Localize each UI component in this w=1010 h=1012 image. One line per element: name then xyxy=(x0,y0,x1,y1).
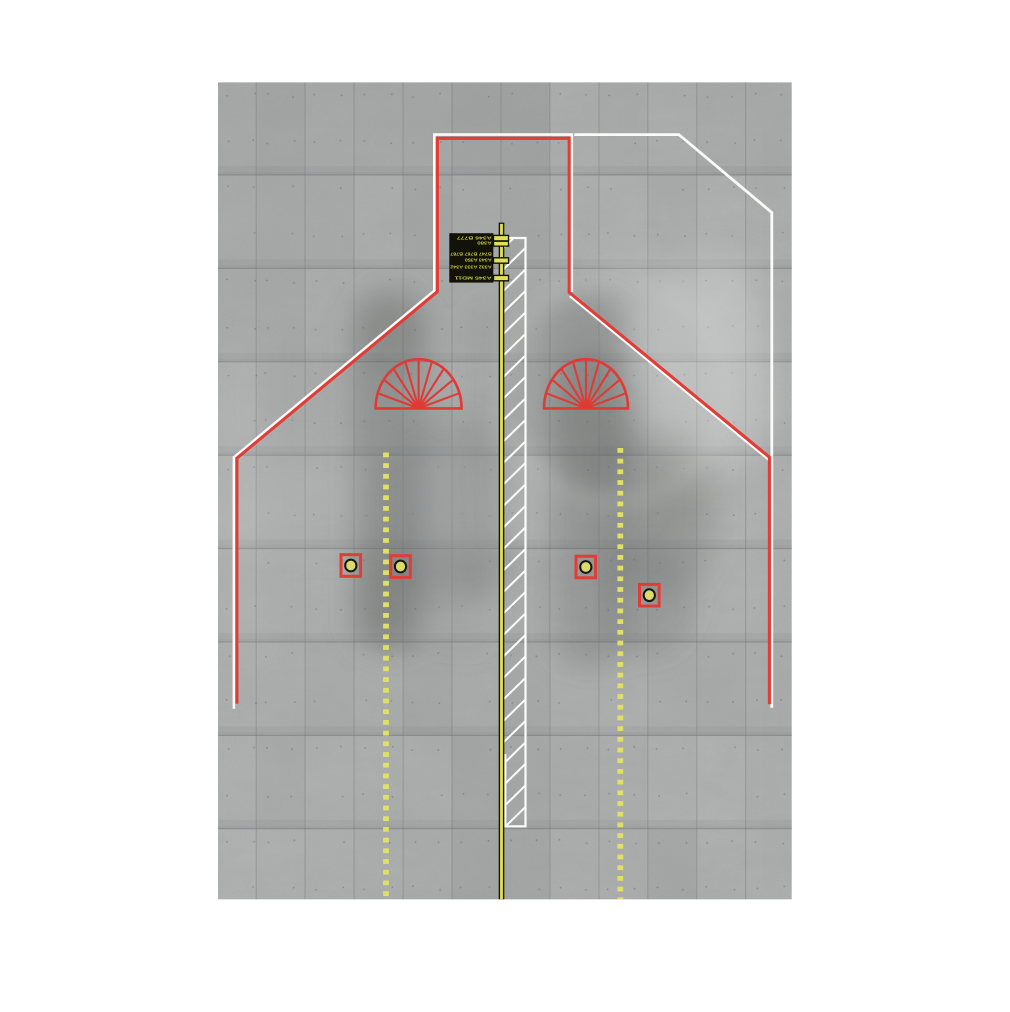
svg-text:A345 MD11: A345 MD11 xyxy=(454,274,491,280)
svg-text:B747 B767 B787: B747 B767 B787 xyxy=(450,250,492,256)
svg-text:A346 B777: A346 B777 xyxy=(456,234,491,240)
svg-text:A332 A333 A342: A332 A333 A342 xyxy=(450,264,492,270)
svg-text:A343 A350: A343 A350 xyxy=(464,257,491,263)
svg-text:A380: A380 xyxy=(477,240,492,246)
